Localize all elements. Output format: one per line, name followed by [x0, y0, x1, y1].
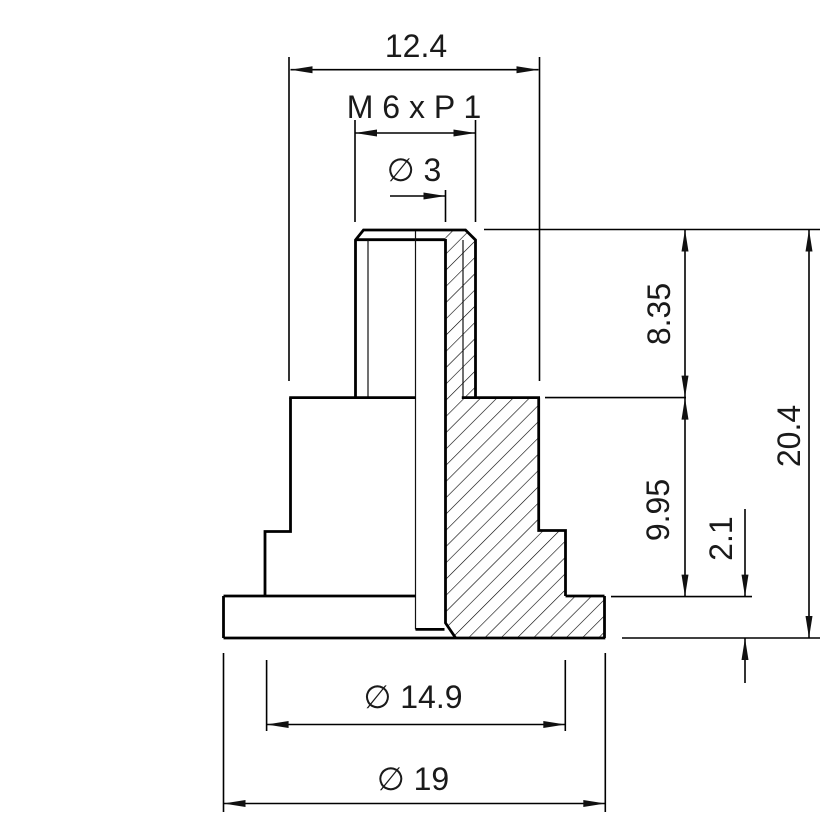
svg-text:∅ 3: ∅ 3	[387, 152, 442, 188]
svg-text:12.4: 12.4	[385, 28, 447, 64]
svg-text:M 6 x P 1: M 6 x P 1	[347, 89, 482, 125]
svg-text:20.4: 20.4	[771, 405, 807, 467]
svg-text:2.1: 2.1	[703, 516, 739, 560]
svg-text:∅ 19: ∅ 19	[377, 761, 449, 797]
svg-text:9.95: 9.95	[640, 479, 676, 541]
svg-text:8.35: 8.35	[641, 283, 677, 345]
svg-text:∅ 14.9: ∅ 14.9	[363, 679, 462, 715]
